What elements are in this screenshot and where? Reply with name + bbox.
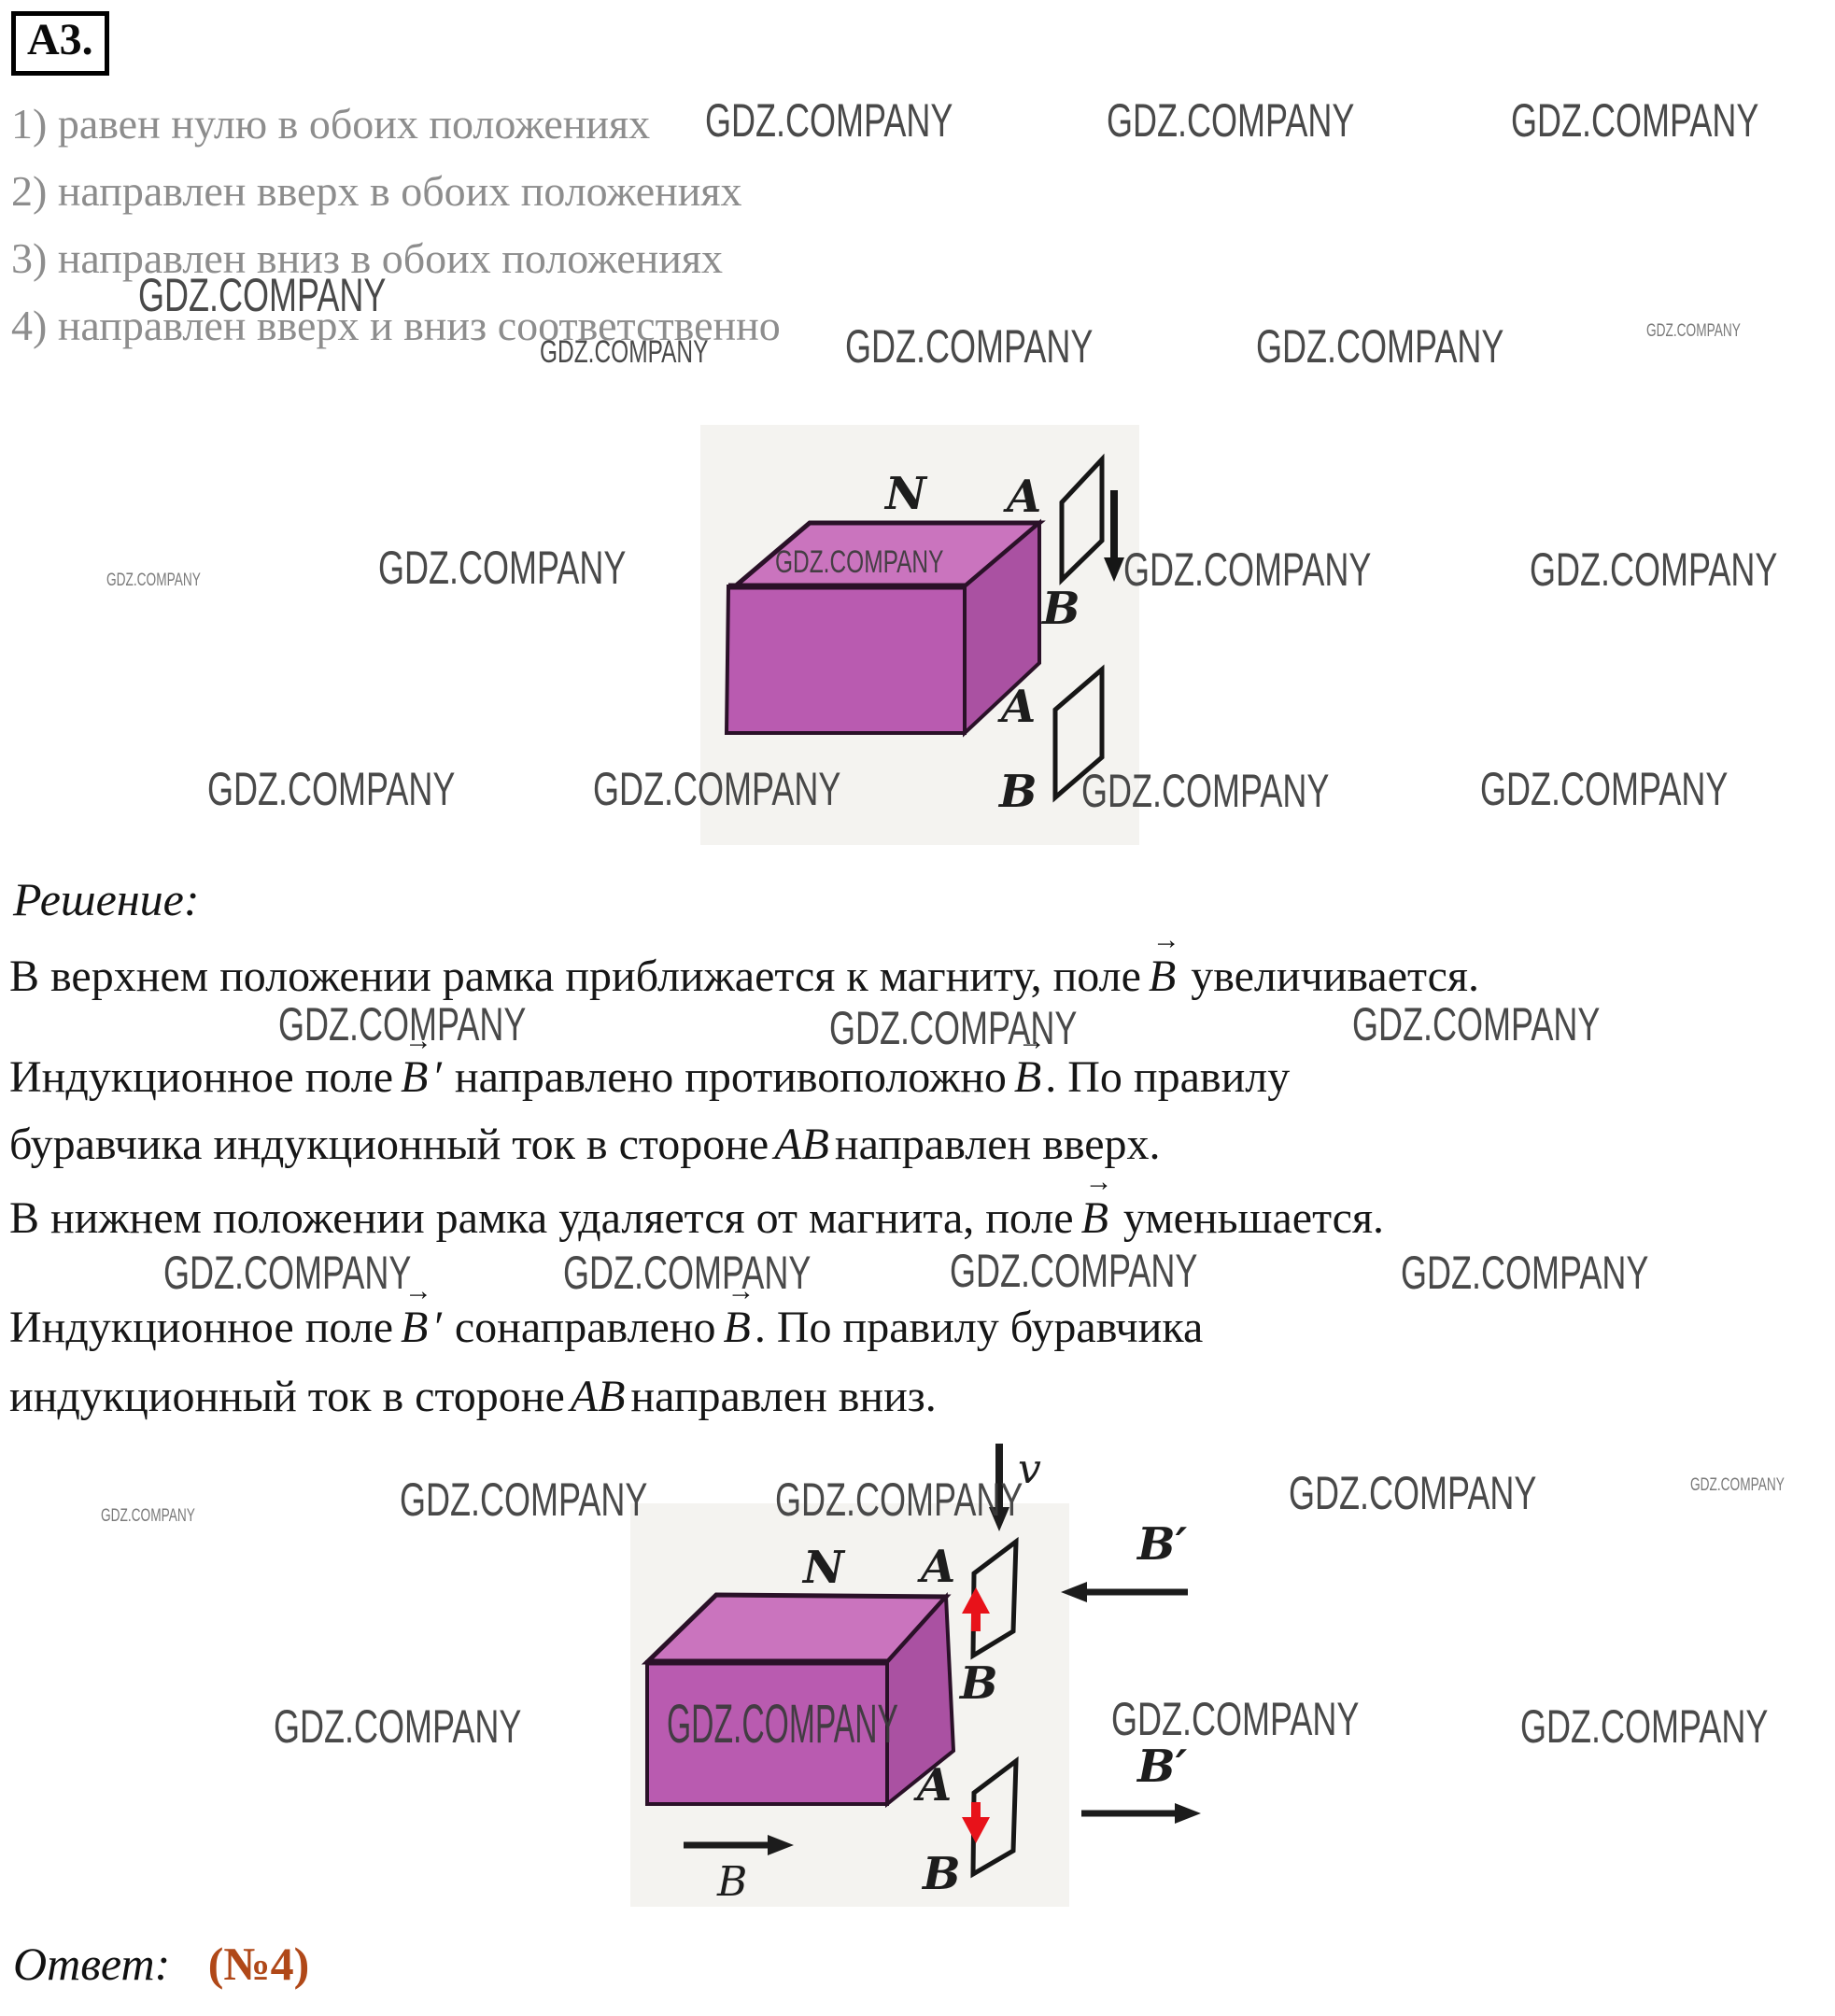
watermark: GDZ.COMPANY <box>1530 546 1777 593</box>
watermark: GDZ.COMPANY <box>278 1001 526 1048</box>
text: В верхнем положении рамка приближается к… <box>9 952 1141 1001</box>
north-pole-label: N <box>883 468 928 520</box>
vector-letter: B <box>1014 1052 1041 1102</box>
text: направлен вниз. <box>630 1372 936 1421</box>
watermark: GDZ.COMPANY <box>1256 323 1503 370</box>
watermark: GDZ.COMPANY <box>101 1507 195 1525</box>
watermark: GDZ.COMPANY <box>400 1476 647 1523</box>
vector-B: →B <box>724 1305 751 1350</box>
watermark: GDZ.COMPANY <box>563 1249 811 1296</box>
watermark: GDZ.COMPANY <box>540 336 708 368</box>
frame1-corner-b-label: B <box>958 1657 998 1710</box>
watermark: GDZ.COMPANY <box>274 1703 521 1750</box>
answer-row: Ответ: (№4) <box>13 1940 309 1987</box>
text: Индукционное поле <box>9 1303 393 1352</box>
option-2: 2) направлен вверх в обоих положениях <box>11 170 742 213</box>
frame2-corner-a-label: A <box>997 681 1036 733</box>
watermark: GDZ.COMPANY <box>1107 97 1354 144</box>
task-number-badge: А3. <box>11 11 109 76</box>
watermark: GDZ.COMPANY <box>705 97 953 144</box>
vector-B: →B <box>1081 1196 1108 1241</box>
watermark: GDZ.COMPANY <box>1081 768 1329 814</box>
text: . По правилу <box>1045 1052 1290 1102</box>
option-1: 1) равен нулю в обоих положениях <box>11 103 650 146</box>
segment-AB: AB <box>571 1372 626 1421</box>
text: Индукционное поле <box>9 1052 393 1102</box>
watermark: GDZ.COMPANY <box>378 544 626 591</box>
prime-mark: ′ <box>431 1303 442 1352</box>
frame1-corner-a-label: A <box>917 1541 955 1593</box>
watermark: GDZ.COMPANY <box>207 766 455 812</box>
magnet-front-face <box>727 586 965 733</box>
text: увеличивается. <box>1191 952 1479 1001</box>
watermark: GDZ.COMPANY <box>106 571 201 589</box>
watermark: GDZ.COMPANY <box>1111 1696 1359 1742</box>
vector-B-prime: →B <box>401 1055 428 1100</box>
segment-AB: AB <box>774 1120 829 1169</box>
prime-mark: ′ <box>431 1052 442 1102</box>
text: буравчика индукционный ток в стороне <box>9 1120 769 1169</box>
frame1-corner-b-label: B <box>1040 583 1080 635</box>
watermark: GDZ.COMPANY <box>1511 97 1758 144</box>
vector-B: →B <box>1014 1055 1041 1100</box>
vector-B: →B <box>1149 954 1176 999</box>
watermark: GDZ.COMPANY <box>138 272 386 318</box>
watermark: GDZ.COMPANY <box>1352 1001 1600 1048</box>
watermark: GDZ.COMPANY <box>667 1698 898 1752</box>
watermark: GDZ.COMPANY <box>1289 1470 1536 1516</box>
watermark: GDZ.COMPANY <box>775 1476 1023 1523</box>
solution-line-3: буравчика индукционный ток в сторонеABна… <box>9 1122 1161 1167</box>
vector-letter: B <box>724 1303 751 1352</box>
magnet-field-label: B <box>716 1858 747 1906</box>
watermark: GDZ.COMPANY <box>775 546 943 578</box>
solution-heading: Решение: <box>13 876 200 923</box>
north-pole-label: N <box>801 1542 846 1594</box>
text: . По правилу буравчика <box>755 1303 1203 1352</box>
text: направлено противоположно <box>455 1052 1007 1102</box>
watermark: GDZ.COMPANY <box>1123 546 1371 593</box>
solution-line-4: В нижнем положении рамка удаляется от ма… <box>9 1196 1384 1241</box>
frame1-corner-a-label: A <box>1003 471 1041 523</box>
watermark: GDZ.COMPANY <box>1690 1476 1785 1494</box>
watermark: GDZ.COMPANY <box>845 323 1093 370</box>
vector-arrow-icon: → <box>1152 926 1179 954</box>
vector-letter: B <box>1149 952 1176 1001</box>
frame2-corner-b-label: B <box>997 766 1037 818</box>
vector-B-prime: →B <box>401 1305 428 1350</box>
solution-line-6: индукционный ток в сторонеABнаправлен вн… <box>9 1375 937 1419</box>
watermark: GDZ.COMPANY <box>1520 1703 1768 1750</box>
induced-field-bottom-arrowhead <box>1175 1803 1201 1824</box>
watermark: GDZ.COMPANY <box>163 1249 411 1296</box>
watermark: GDZ.COMPANY <box>593 766 840 812</box>
text: направлен вверх. <box>835 1120 1161 1169</box>
text: сонаправлено <box>455 1303 716 1352</box>
frame2-corner-a-label: A <box>913 1759 952 1812</box>
solution-line-5: Индукционное поле→B′ сонаправлено→B. По … <box>9 1305 1203 1350</box>
answer-value: (№4) <box>208 1938 310 1990</box>
solution-line-1: В верхнем положении рамка приближается к… <box>9 954 1479 999</box>
induced-field-top-label: B′ <box>1136 1518 1188 1571</box>
vector-letter: B <box>1081 1193 1108 1243</box>
text: В нижнем положении рамка удаляется от ма… <box>9 1193 1074 1243</box>
vector-arrow-icon: → <box>1085 1168 1111 1196</box>
answer-label: Ответ: <box>13 1938 170 1990</box>
vector-letter: B <box>401 1303 428 1352</box>
watermark: GDZ.COMPANY <box>1646 322 1741 340</box>
vector-letter: B <box>401 1052 428 1102</box>
watermark: GDZ.COMPANY <box>950 1248 1197 1294</box>
induced-field-bottom-label: B′ <box>1136 1741 1188 1793</box>
text: уменьшается. <box>1123 1193 1384 1243</box>
watermark: GDZ.COMPANY <box>829 1005 1077 1051</box>
frame2-corner-b-label: B <box>921 1848 961 1900</box>
text: индукционный ток в стороне <box>9 1372 565 1421</box>
watermark: GDZ.COMPANY <box>1401 1249 1648 1296</box>
solution-line-2: Индукционное поле→B′ направлено противоп… <box>9 1055 1290 1100</box>
watermark: GDZ.COMPANY <box>1480 766 1728 812</box>
